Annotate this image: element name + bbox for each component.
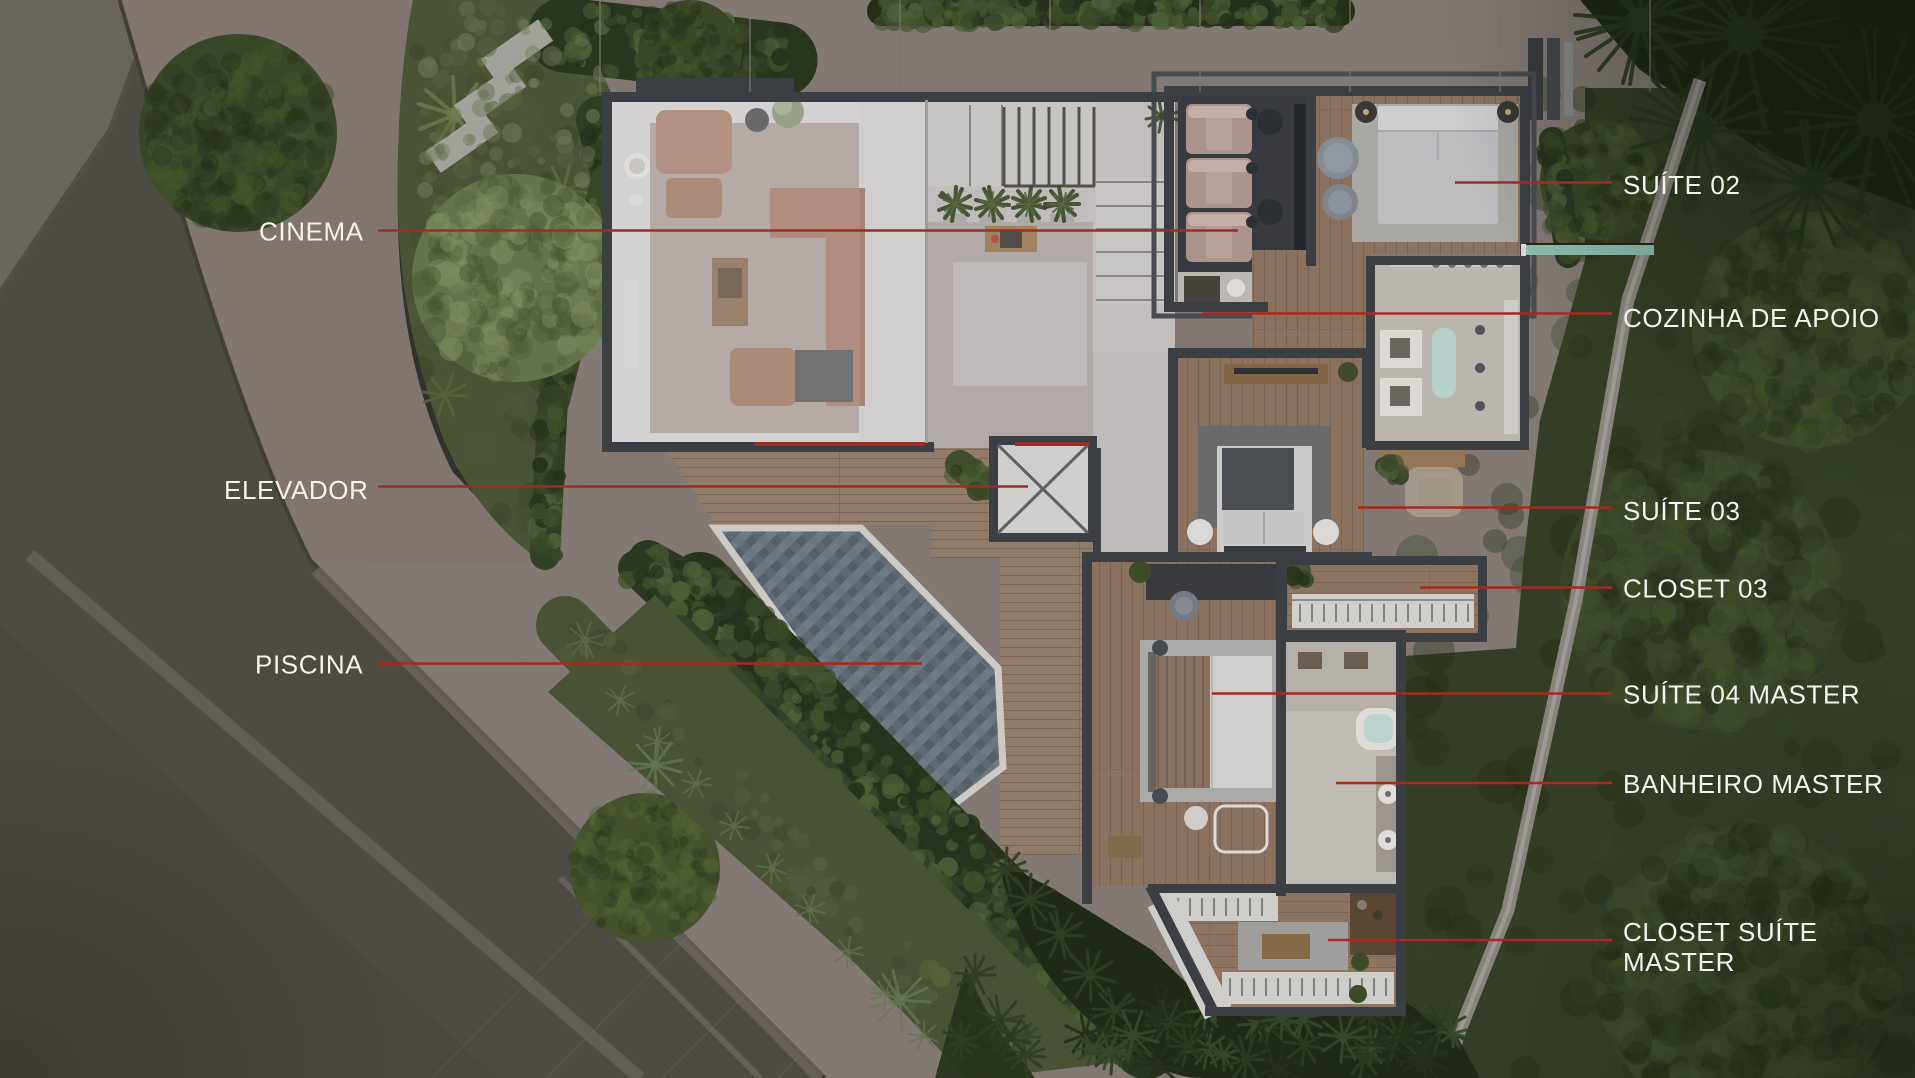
svg-text:BANHEIRO MASTER: BANHEIRO MASTER [1623, 769, 1883, 799]
svg-text:ELEVADOR: ELEVADOR [224, 475, 368, 505]
svg-text:CLOSET 03: CLOSET 03 [1623, 574, 1768, 604]
svg-text:SUÍTE 03: SUÍTE 03 [1623, 496, 1741, 526]
svg-text:COZINHA DE APOIO: COZINHA DE APOIO [1623, 303, 1880, 333]
svg-text:SUÍTE 04 MASTER: SUÍTE 04 MASTER [1623, 680, 1860, 710]
svg-text:PISCINA: PISCINA [255, 650, 363, 680]
svg-text:SUÍTE 02: SUÍTE 02 [1623, 170, 1741, 200]
svg-text:CINEMA: CINEMA [259, 217, 364, 247]
svg-text:MASTER: MASTER [1623, 947, 1735, 977]
svg-text:CLOSET SUÍTE: CLOSET SUÍTE [1623, 917, 1818, 947]
